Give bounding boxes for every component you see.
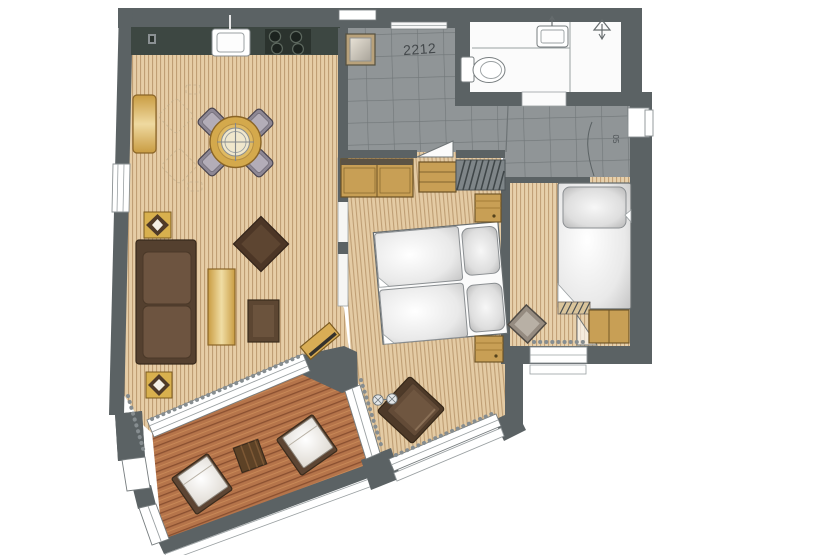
svg-text:05: 05: [611, 135, 620, 144]
svg-text:2212: 2212: [403, 40, 437, 58]
